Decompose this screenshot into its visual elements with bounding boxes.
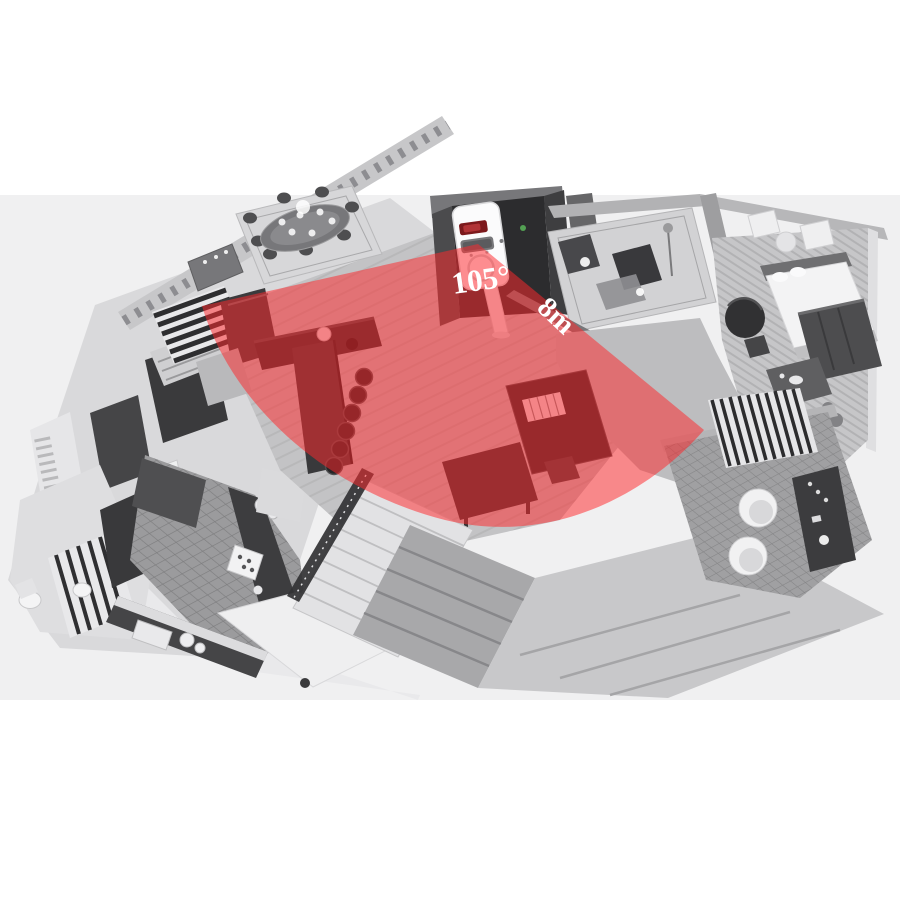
terrace-glow bbox=[819, 535, 829, 545]
ottoman bbox=[776, 232, 796, 252]
bedroom-armchair bbox=[800, 220, 834, 250]
pillow bbox=[772, 272, 788, 282]
candle-glow bbox=[636, 288, 644, 296]
plate bbox=[195, 643, 205, 653]
sensor-coverage-illustration: 105° 8m bbox=[0, 0, 900, 900]
indicator-dot bbox=[520, 225, 526, 231]
kettle bbox=[254, 586, 263, 595]
pillow bbox=[790, 267, 806, 277]
chandelier-glow bbox=[296, 200, 310, 214]
plate bbox=[180, 633, 194, 647]
island-stool bbox=[300, 678, 310, 688]
fireplace-glow bbox=[580, 257, 590, 267]
bidet bbox=[73, 583, 91, 597]
